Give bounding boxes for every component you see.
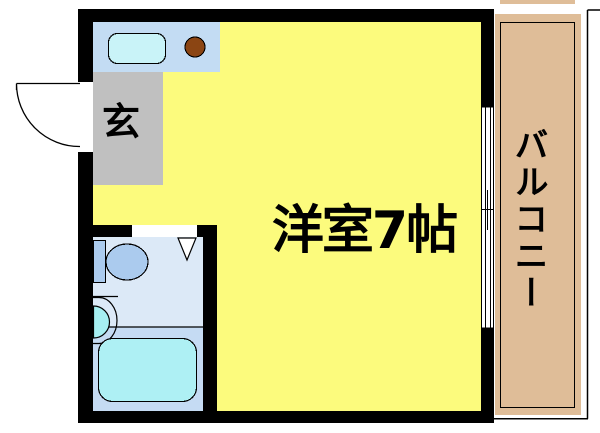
entrance-door-swing [17, 84, 81, 147]
bathroom-door-opening [132, 225, 197, 237]
wall-right-upper [481, 9, 494, 107]
entrance-label: 玄 [96, 103, 146, 141]
wall-bottom [78, 411, 494, 423]
toilet-tank [94, 241, 106, 283]
entrance-door-opening [78, 82, 93, 152]
stove-burner [185, 37, 205, 57]
toilet-bowl [106, 244, 148, 280]
main-room-label: 洋室7帖 [214, 205, 514, 257]
bathtub [99, 339, 197, 402]
wall-right-lower [481, 328, 494, 423]
wall-left [78, 9, 93, 423]
kitchen-sink [109, 34, 166, 64]
balcony-label: バルコニー [511, 127, 545, 312]
floorplan-canvas: 洋室7帖 玄 バルコニー [0, 0, 600, 433]
wall-top [78, 9, 494, 22]
balcony-top-strip [500, 0, 575, 4]
